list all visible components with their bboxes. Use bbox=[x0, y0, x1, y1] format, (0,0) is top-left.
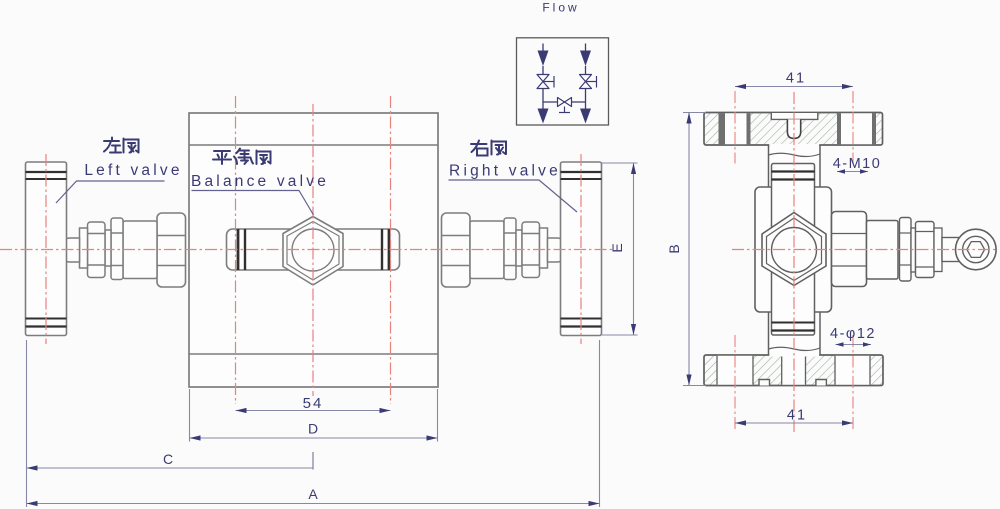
svg-text:Flow: Flow bbox=[542, 1, 579, 15]
svg-text:B: B bbox=[666, 244, 682, 253]
svg-text:41: 41 bbox=[787, 408, 807, 424]
svg-text:C: C bbox=[163, 451, 173, 467]
svg-text:41: 41 bbox=[786, 71, 806, 87]
svg-text:54: 54 bbox=[303, 395, 324, 412]
svg-text:Balance valve: Balance valve bbox=[191, 173, 329, 190]
svg-text:4-M10: 4-M10 bbox=[833, 156, 882, 172]
svg-text:4-φ12: 4-φ12 bbox=[830, 326, 876, 342]
svg-text:E: E bbox=[609, 243, 625, 252]
svg-text:Left valve: Left valve bbox=[84, 162, 182, 179]
svg-text:A: A bbox=[308, 486, 318, 502]
svg-text:D: D bbox=[308, 421, 318, 437]
svg-text:Right valve: Right valve bbox=[449, 163, 561, 180]
